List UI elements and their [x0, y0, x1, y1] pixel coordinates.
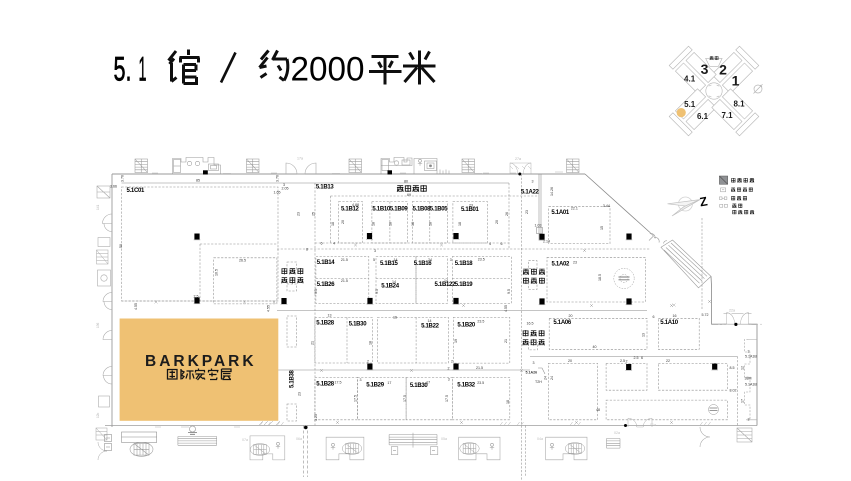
svg-text:21: 21: [504, 339, 508, 343]
svg-text:2000: 2000: [291, 51, 365, 89]
svg-text:18: 18: [331, 222, 335, 226]
svg-text:5: 5: [373, 258, 375, 262]
svg-text:5.: 5.: [114, 51, 132, 89]
svg-text:17.5: 17.5: [445, 395, 449, 402]
svg-text:4.1: 4.1: [684, 75, 696, 84]
svg-text:1.65: 1.65: [274, 191, 281, 195]
svg-text:3: 3: [374, 249, 376, 253]
svg-text:18: 18: [429, 222, 433, 226]
svg-text:23: 23: [525, 210, 529, 214]
svg-text:5.1A26: 5.1A26: [526, 371, 538, 375]
svg-text:27a: 27a: [515, 157, 521, 161]
svg-text:4: 4: [489, 242, 491, 246]
svg-text:48: 48: [596, 408, 600, 412]
svg-text:15: 15: [600, 226, 604, 230]
svg-text:7.1: 7.1: [721, 111, 733, 120]
svg-text:5.1C01: 5.1C01: [127, 188, 146, 194]
svg-text:2: 2: [448, 367, 450, 371]
svg-text:4: 4: [333, 242, 335, 246]
svg-text:5.1B20: 5.1B20: [457, 323, 476, 329]
svg-text:26.5: 26.5: [239, 259, 246, 263]
svg-text:5.1A1B: 5.1A1B: [745, 383, 757, 387]
svg-text:07a: 07a: [242, 438, 248, 442]
svg-text:14.26: 14.26: [550, 187, 554, 196]
svg-text:23.5: 23.5: [477, 320, 484, 324]
svg-text:17.5: 17.5: [335, 380, 342, 384]
svg-text:3.44: 3.44: [603, 204, 610, 208]
svg-text:5.1A06: 5.1A06: [553, 320, 572, 326]
svg-text:2: 2: [719, 62, 727, 78]
svg-text:5.1B29: 5.1B29: [366, 382, 385, 388]
svg-text:16: 16: [393, 316, 397, 320]
svg-text:1: 1: [139, 51, 147, 89]
svg-text:5.1B10: 5.1B10: [372, 206, 391, 212]
svg-text:20: 20: [569, 314, 573, 318]
svg-text:6.1: 6.1: [697, 112, 709, 121]
svg-text:06a: 06a: [296, 437, 302, 441]
svg-text:3: 3: [448, 377, 450, 381]
svg-text:5.1: 5.1: [684, 100, 696, 109]
svg-text:4.88: 4.88: [352, 203, 359, 207]
svg-text:5.1B13: 5.1B13: [316, 185, 335, 191]
svg-text:5.1A1B: 5.1A1B: [745, 355, 757, 359]
svg-text:24: 24: [428, 258, 432, 262]
svg-text:141: 141: [96, 204, 100, 210]
svg-text:23: 23: [298, 392, 302, 396]
svg-text:80: 80: [404, 180, 408, 184]
svg-text:BARKPARK: BARKPARK: [145, 353, 257, 370]
svg-text:5.1B122: 5.1B122: [435, 282, 457, 288]
svg-text:19: 19: [454, 339, 458, 343]
svg-text:22.1: 22.1: [571, 207, 578, 211]
svg-text:3: 3: [748, 350, 750, 354]
svg-text:18: 18: [389, 222, 393, 226]
svg-text:6: 6: [321, 242, 323, 246]
svg-text:13: 13: [642, 333, 646, 337]
svg-text:5.1B08: 5.1B08: [413, 206, 432, 212]
svg-text:5.1B05: 5.1B05: [430, 206, 449, 212]
svg-text:38M: 38M: [745, 377, 752, 381]
svg-text:18.5: 18.5: [598, 274, 602, 281]
svg-text:5.1A10: 5.1A10: [660, 320, 679, 326]
svg-text:9.5: 9.5: [507, 289, 511, 294]
svg-text:4.55: 4.55: [267, 305, 271, 312]
svg-text:2: 2: [626, 360, 628, 364]
svg-text:5.1A01: 5.1A01: [551, 210, 570, 216]
svg-text:14: 14: [428, 319, 432, 323]
svg-text:18: 18: [458, 222, 462, 226]
svg-text:18: 18: [411, 222, 415, 226]
svg-text:6: 6: [653, 315, 655, 319]
svg-text:2.5: 2.5: [620, 359, 625, 363]
svg-text:26: 26: [505, 212, 509, 216]
svg-text:8.02: 8.02: [730, 389, 737, 393]
svg-text:1.03: 1.03: [535, 224, 542, 228]
svg-text:21.5: 21.5: [341, 279, 348, 283]
svg-text:3: 3: [701, 61, 709, 77]
svg-text:20: 20: [341, 220, 345, 224]
svg-text:2.5: 2.5: [634, 356, 639, 360]
svg-text:16.5: 16.5: [527, 321, 534, 325]
svg-text:8.1: 8.1: [733, 100, 745, 109]
svg-text:17: 17: [741, 399, 745, 403]
svg-text:21.5: 21.5: [476, 366, 483, 370]
svg-text:21.5: 21.5: [341, 258, 348, 262]
svg-text:9.5: 9.5: [314, 289, 318, 294]
svg-text:3.76: 3.76: [275, 175, 279, 182]
svg-text:04a: 04a: [537, 437, 543, 441]
svg-text:3.76: 3.76: [121, 175, 125, 182]
svg-text:18: 18: [372, 222, 376, 226]
svg-text:9.5: 9.5: [375, 289, 379, 294]
svg-text:3: 3: [450, 258, 452, 262]
svg-text:3.66: 3.66: [110, 185, 117, 189]
svg-text:3: 3: [748, 418, 750, 422]
svg-text:5.1B24: 5.1B24: [381, 283, 400, 289]
svg-text:23.5: 23.5: [477, 381, 484, 385]
svg-text:4.55: 4.55: [504, 305, 508, 312]
svg-text:3.25: 3.25: [314, 414, 318, 421]
svg-text:5.1B09: 5.1B09: [390, 206, 409, 212]
svg-text:14: 14: [394, 258, 398, 262]
svg-text:5.1B12: 5.1B12: [341, 206, 360, 212]
svg-text:13: 13: [328, 314, 332, 318]
svg-text:17: 17: [426, 380, 430, 384]
svg-text:23: 23: [297, 212, 301, 216]
svg-text:5.72: 5.72: [702, 313, 709, 317]
svg-text:05a: 05a: [441, 437, 447, 441]
svg-text:25: 25: [312, 212, 316, 216]
svg-text:20: 20: [495, 220, 499, 224]
svg-text:12b: 12b: [96, 412, 100, 418]
svg-text:23: 23: [469, 204, 473, 208]
svg-text:3: 3: [533, 361, 535, 365]
svg-text:6: 6: [641, 356, 643, 360]
svg-text:4.55: 4.55: [134, 303, 138, 310]
svg-text:23.5: 23.5: [478, 258, 485, 262]
svg-text:17a: 17a: [297, 157, 303, 161]
svg-text:8.5: 8.5: [730, 366, 735, 370]
svg-text:5.1B30: 5.1B30: [349, 321, 368, 327]
svg-text:5.1B22: 5.1B22: [421, 324, 440, 330]
svg-text:69: 69: [407, 193, 411, 197]
svg-text:02a: 02a: [614, 431, 620, 435]
svg-text:5.1B28: 5.1B28: [316, 381, 335, 387]
svg-text:6: 6: [501, 242, 503, 246]
svg-text:18: 18: [506, 400, 510, 404]
svg-text:20: 20: [568, 359, 572, 363]
svg-text:136: 136: [96, 322, 100, 328]
svg-text:01a: 01a: [650, 423, 656, 427]
svg-text:24: 24: [544, 376, 548, 380]
svg-text:50: 50: [119, 244, 123, 248]
svg-text:5.1B01: 5.1B01: [461, 207, 480, 213]
svg-text:22a: 22a: [729, 309, 735, 313]
svg-text:2: 2: [451, 360, 453, 364]
svg-text:5.1B18: 5.1B18: [455, 261, 474, 267]
svg-text:17: 17: [387, 381, 391, 385]
svg-text:23: 23: [573, 261, 577, 265]
svg-text:3: 3: [360, 378, 362, 382]
svg-text:2.05: 2.05: [282, 187, 289, 191]
svg-text:22: 22: [666, 359, 670, 363]
svg-text:2: 2: [367, 360, 369, 364]
svg-text:5.1A02: 5.1A02: [552, 261, 571, 267]
svg-text:5.1B28: 5.1B28: [316, 321, 335, 327]
svg-text:5.1A22: 5.1A22: [521, 189, 540, 195]
svg-text:85: 85: [196, 179, 200, 183]
svg-text:40: 40: [593, 345, 597, 349]
svg-text:12: 12: [741, 366, 745, 370]
svg-text:10.5: 10.5: [215, 269, 219, 276]
svg-text:24: 24: [550, 376, 554, 380]
svg-text:21: 21: [311, 341, 315, 345]
svg-text:5.1B38: 5.1B38: [290, 369, 296, 388]
svg-text:5.1B32: 5.1B32: [457, 382, 476, 388]
svg-text:5.1B19: 5.1B19: [455, 282, 474, 288]
svg-text:T2H: T2H: [535, 380, 542, 384]
svg-text:3: 3: [532, 180, 534, 184]
svg-text:16: 16: [673, 314, 677, 318]
svg-text:14: 14: [392, 280, 396, 284]
svg-text:5.1B26: 5.1B26: [317, 282, 336, 288]
svg-text:1: 1: [732, 73, 740, 89]
svg-text:14: 14: [444, 279, 448, 283]
svg-text:8: 8: [306, 248, 308, 252]
svg-text:18: 18: [369, 341, 373, 345]
svg-text:5.1B14: 5.1B14: [317, 260, 336, 266]
svg-text:17.5: 17.5: [354, 395, 358, 402]
